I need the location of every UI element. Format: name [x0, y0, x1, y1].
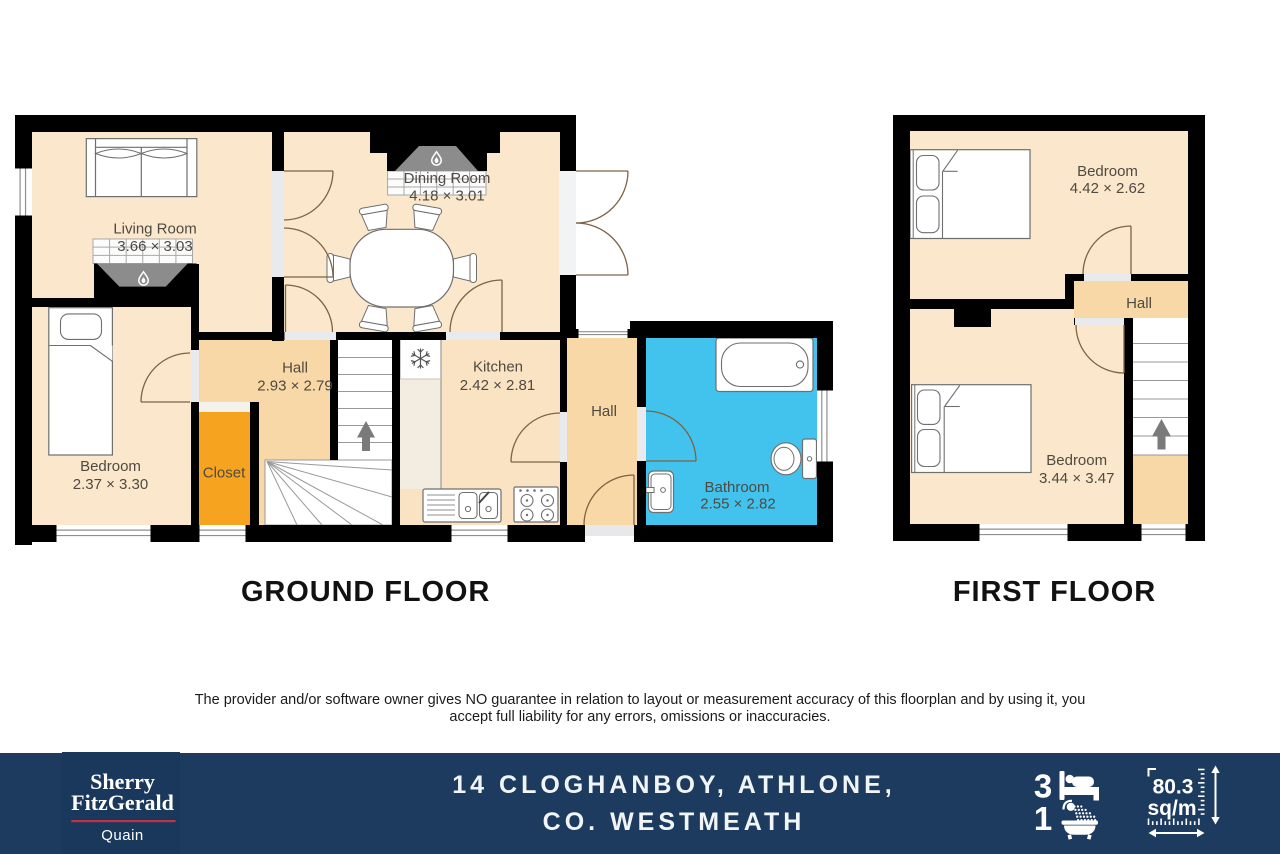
svg-text:Kitchen: Kitchen — [473, 359, 523, 376]
svg-text:2.93 × 2.79: 2.93 × 2.79 — [257, 378, 332, 395]
svg-text:Hall: Hall — [591, 403, 617, 420]
svg-text:1: 1 — [1034, 800, 1052, 837]
svg-text:Quain: Quain — [101, 827, 144, 844]
svg-text:2.37 × 3.30: 2.37 × 3.30 — [73, 476, 148, 493]
svg-text:80.3: 80.3 — [1153, 776, 1194, 799]
svg-text:FIRST FLOOR: FIRST FLOOR — [953, 576, 1156, 608]
svg-text:accept full liability for any: accept full liability for any errors, om… — [449, 709, 830, 725]
svg-text:Hall: Hall — [1126, 295, 1152, 312]
svg-text:3: 3 — [1034, 768, 1052, 805]
svg-text:Bathroom: Bathroom — [704, 479, 769, 496]
svg-text:2.55 × 2.82: 2.55 × 2.82 — [700, 496, 775, 513]
svg-text:Bedroom: Bedroom — [1046, 452, 1107, 469]
svg-text:Hall: Hall — [282, 360, 308, 377]
svg-text:Bedroom: Bedroom — [1077, 163, 1138, 180]
svg-text:The provider and/or software o: The provider and/or software owner gives… — [195, 692, 1086, 708]
svg-text:14 CLOGHANBOY, ATHLONE,: 14 CLOGHANBOY, ATHLONE, — [452, 771, 895, 799]
svg-text:Dining Room: Dining Room — [404, 170, 491, 187]
svg-text:Living Room: Living Room — [113, 221, 196, 238]
svg-text:2.42 × 2.81: 2.42 × 2.81 — [460, 377, 535, 394]
svg-text:4.18 × 3.01: 4.18 × 3.01 — [409, 188, 484, 205]
svg-text:Closet: Closet — [203, 465, 246, 482]
svg-text:sq/m: sq/m — [1147, 797, 1196, 820]
svg-text:3.66 × 3.03: 3.66 × 3.03 — [117, 238, 192, 255]
svg-text:Bedroom: Bedroom — [80, 458, 141, 475]
svg-text:3.44 × 3.47: 3.44 × 3.47 — [1039, 470, 1114, 487]
svg-text:CO. WESTMEATH: CO. WESTMEATH — [543, 808, 806, 836]
svg-text:GROUND FLOOR: GROUND FLOOR — [241, 576, 490, 608]
svg-text:4.42 × 2.62: 4.42 × 2.62 — [1070, 180, 1145, 197]
svg-text:FitzGerald: FitzGerald — [71, 790, 174, 815]
